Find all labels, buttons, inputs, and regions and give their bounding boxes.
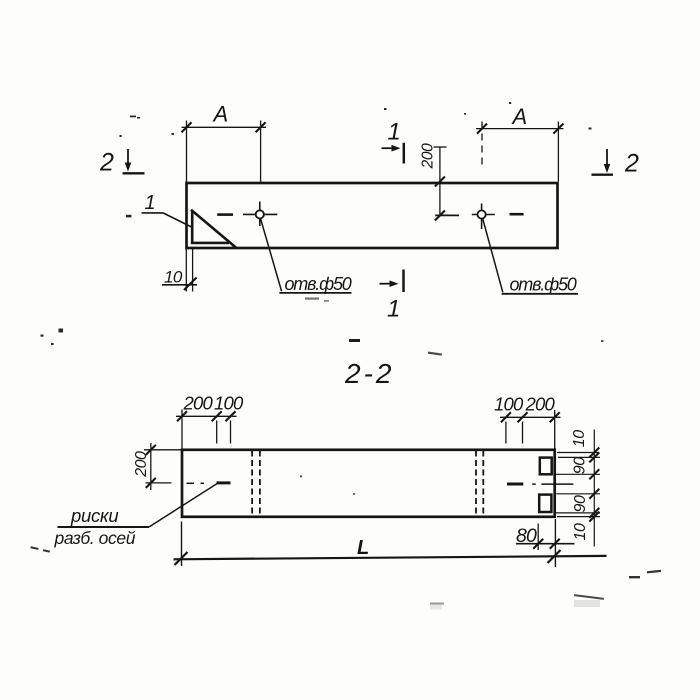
svg-text:A: A <box>511 104 528 129</box>
svg-text:100: 100 <box>494 394 524 415</box>
svg-text:2: 2 <box>624 150 639 178</box>
svg-text:отв.ф50: отв.ф50 <box>510 275 577 295</box>
svg-text:200: 200 <box>183 393 214 414</box>
svg-text:10: 10 <box>571 430 588 447</box>
svg-text:L: L <box>357 537 369 559</box>
svg-text:10: 10 <box>164 268 183 287</box>
svg-text:100: 100 <box>214 393 244 414</box>
svg-text:200: 200 <box>420 143 437 169</box>
svg-text:риски: риски <box>70 505 118 526</box>
svg-text:90: 90 <box>572 457 589 474</box>
svg-text:200: 200 <box>133 451 150 478</box>
svg-text:1: 1 <box>388 119 401 146</box>
svg-text:2-2: 2-2 <box>344 358 394 389</box>
svg-text:отв.ф50: отв.ф50 <box>285 274 352 294</box>
svg-text:10: 10 <box>572 523 589 540</box>
svg-text:2: 2 <box>99 149 114 177</box>
svg-text:90: 90 <box>572 495 589 512</box>
svg-text:200: 200 <box>525 394 556 415</box>
svg-text:A: A <box>212 102 229 127</box>
svg-text:1: 1 <box>145 192 156 214</box>
svg-text:80: 80 <box>516 525 537 547</box>
svg-text:разб. осей: разб. осей <box>54 528 136 548</box>
svg-text:1: 1 <box>387 296 400 323</box>
